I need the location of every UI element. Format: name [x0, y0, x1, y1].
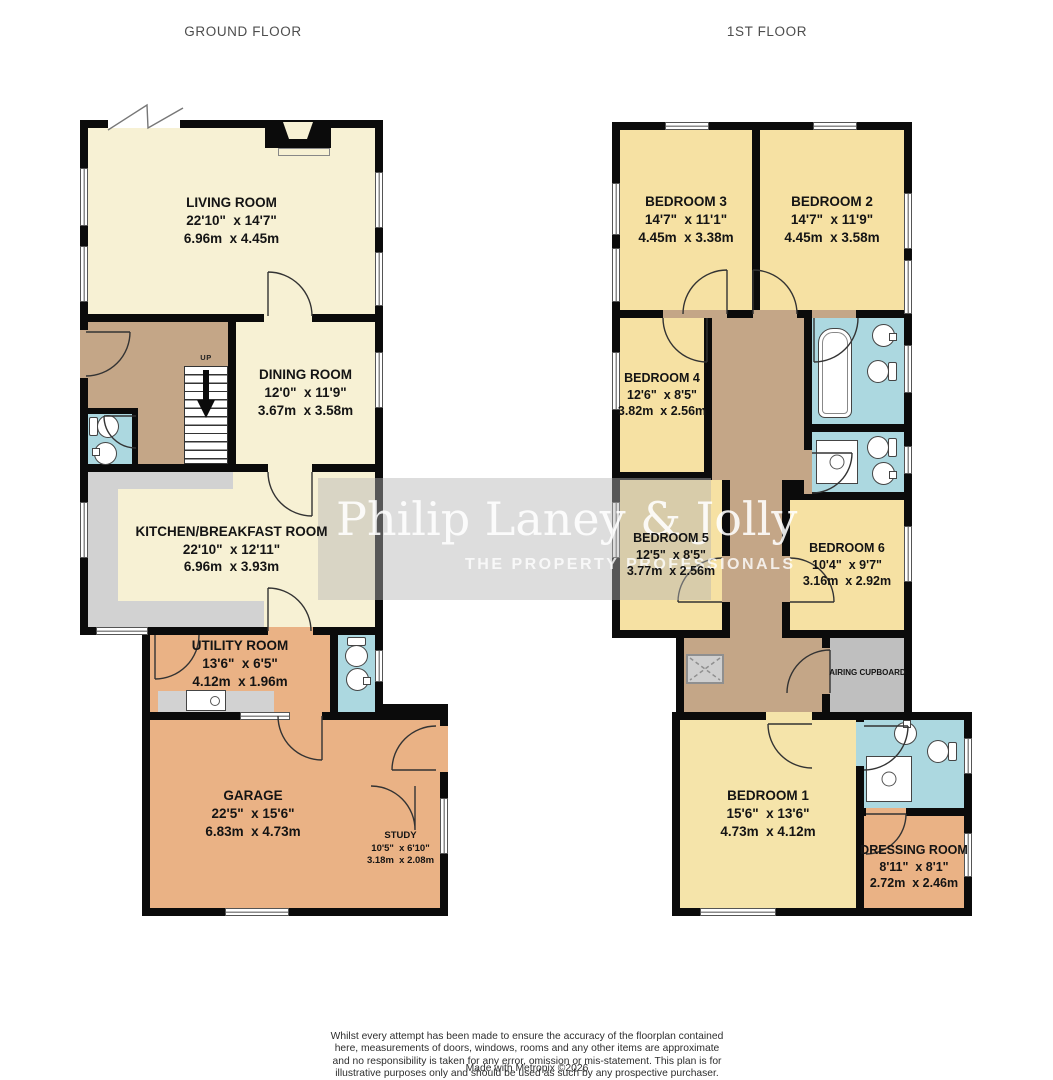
footer-credit: Made with Metropix ©2026: [327, 1063, 727, 1075]
floorplan-canvas: GROUND FLOOR 1ST FLOOR UP: [0, 0, 1053, 1080]
dressing-room-label: DRESSING ROOM8'11" x 8'1"2.72m x 2.46m: [852, 828, 976, 906]
garage-label: GARAGE22'5" x 15'6"6.83m x 4.73m: [108, 720, 398, 908]
door-arc: [104, 416, 136, 448]
ground-floor-title: GROUND FLOOR: [143, 24, 343, 39]
door-arc: [814, 318, 858, 362]
bedroom5-label: BEDROOM 512'5" x 8'5"3.77m x 2.56m: [620, 480, 722, 630]
study-label: STUDY10'5" x 6'10"3.18m x 2.08m: [361, 790, 440, 908]
bedroom3-label: BEDROOM 314'7" x 11'1"4.45m x 3.38m: [620, 130, 752, 310]
door-arc: [812, 453, 852, 493]
bedroom4-label: BEDROOM 412'6" x 8'5"3.82m x 2.56m: [620, 318, 704, 472]
bedroom2-label: BEDROOM 214'7" x 11'9"4.45m x 3.58m: [760, 130, 904, 310]
kitchen-label: KITCHEN/BREAKFAST ROOM22'10" x 12'11"6.9…: [88, 472, 375, 627]
dining-room-label: DINING ROOM12'0" x 11'9"3.67m x 3.58m: [236, 322, 375, 464]
utility-room-label: UTILITY ROOM13'6" x 6'5"4.12m x 1.96m: [150, 635, 330, 693]
watermark-brand: Philip Laney & Jolly: [336, 492, 797, 546]
open-entry-zigzag: [108, 105, 183, 130]
door-arc: [392, 726, 436, 770]
bedroom1-label: BEDROOM 115'6" x 13'6"4.73m x 4.12m: [680, 720, 856, 908]
door-arc: [864, 726, 908, 770]
living-room-label: LIVING ROOM22'10" x 14'7"6.96m x 4.45m: [88, 128, 375, 314]
airing-cupboard-label: AIRING CUPBOARD: [820, 668, 915, 679]
door-arc: [86, 332, 130, 376]
first-floor-title: 1ST FLOOR: [667, 24, 867, 39]
bedroom6-label: BEDROOM 610'4" x 9'7"3.16m x 2.92m: [790, 500, 904, 630]
stairs-arrow: [197, 370, 215, 418]
